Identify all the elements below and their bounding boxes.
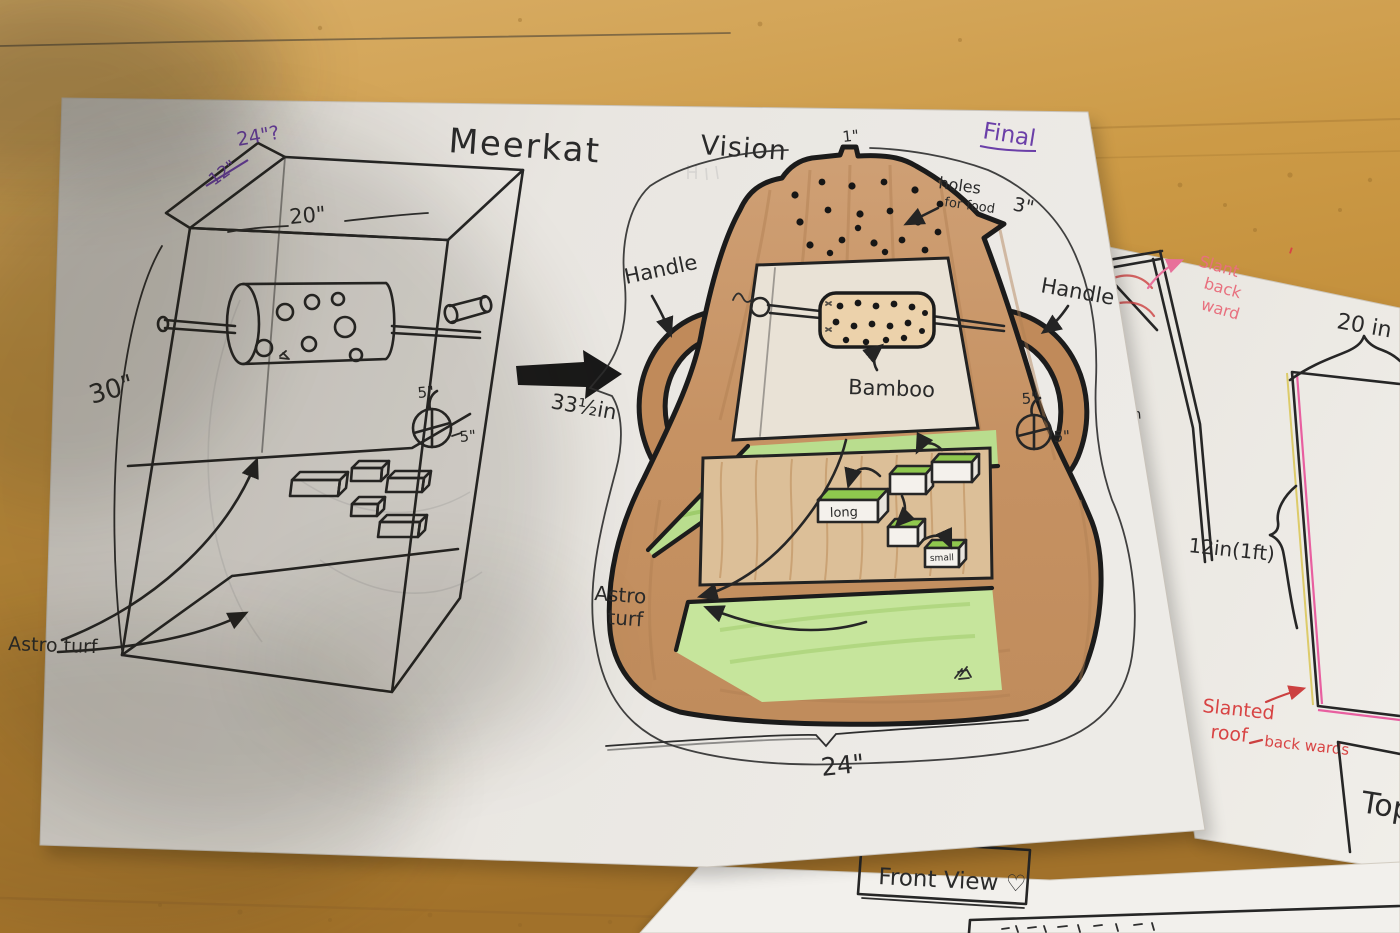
floor-material-label: Astro turf: [8, 633, 99, 658]
width-dim-label: 20": [288, 202, 326, 229]
ball-dim-top-label: 5": [417, 383, 435, 402]
main-paper: Meerkat Vision Final: [8, 98, 1213, 877]
ball-dim-side-label: 5": [459, 427, 477, 446]
shelf-ball-dim-top: 5": [1021, 389, 1039, 408]
shelf-ball-dim-side: 5": [1053, 427, 1071, 446]
bamboo-label: Bamboo: [848, 375, 936, 402]
roof-note-line2: roof: [1209, 721, 1250, 747]
block-long-label: long: [830, 505, 859, 521]
bottom-dim-label: 24": [820, 749, 866, 782]
lower-chamber: long small: [700, 443, 992, 585]
turf-note-line1: Astro: [594, 581, 648, 609]
block-small-label: small: [930, 553, 954, 564]
photo-canvas: Slant back ward ' 1in 20 in 12in(1ft) Sl…: [0, 0, 1400, 933]
peak-dim-label: 1": [842, 126, 860, 146]
upper-chamber-panel: [733, 258, 978, 440]
turf-note-line2: turf: [607, 605, 645, 632]
scene-svg: Slant back ward ' 1in 20 in 12in(1ft) Sl…: [0, 0, 1400, 933]
title-vision: Vision: [700, 130, 789, 167]
